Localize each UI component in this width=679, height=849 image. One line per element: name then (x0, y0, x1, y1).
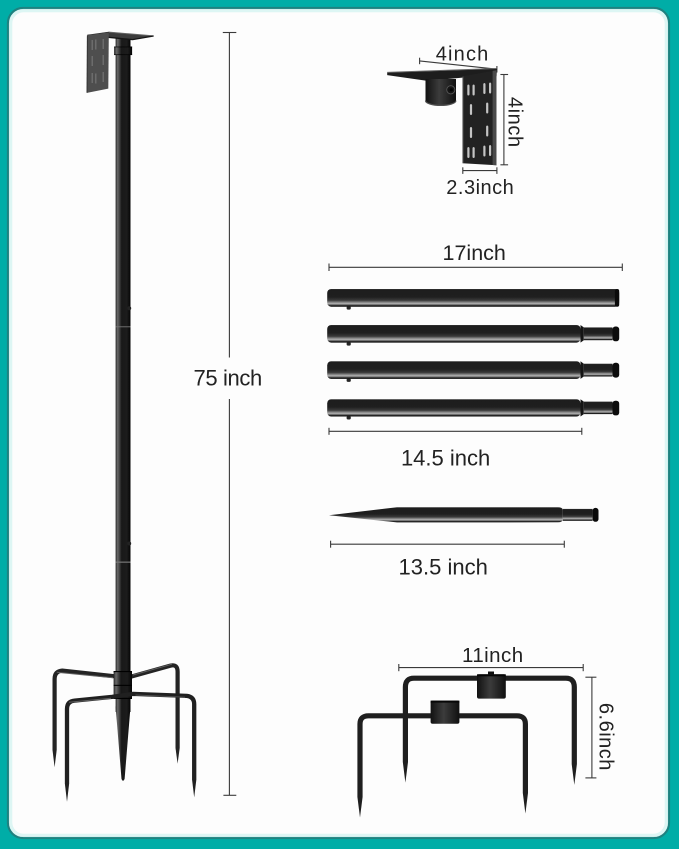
svg-text:4inch: 4inch (504, 97, 526, 148)
svg-text:11inch: 11inch (462, 644, 524, 667)
svg-text:4inch: 4inch (436, 43, 490, 65)
svg-text:2.3inch: 2.3inch (446, 177, 514, 199)
svg-text:14.5 inch: 14.5 inch (401, 445, 490, 470)
svg-text:13.5 inch: 13.5 inch (399, 554, 488, 579)
svg-text:6.6inch: 6.6inch (594, 703, 616, 771)
svg-text:17inch: 17inch (443, 241, 506, 265)
svg-text:75 inch: 75 inch (193, 366, 262, 391)
